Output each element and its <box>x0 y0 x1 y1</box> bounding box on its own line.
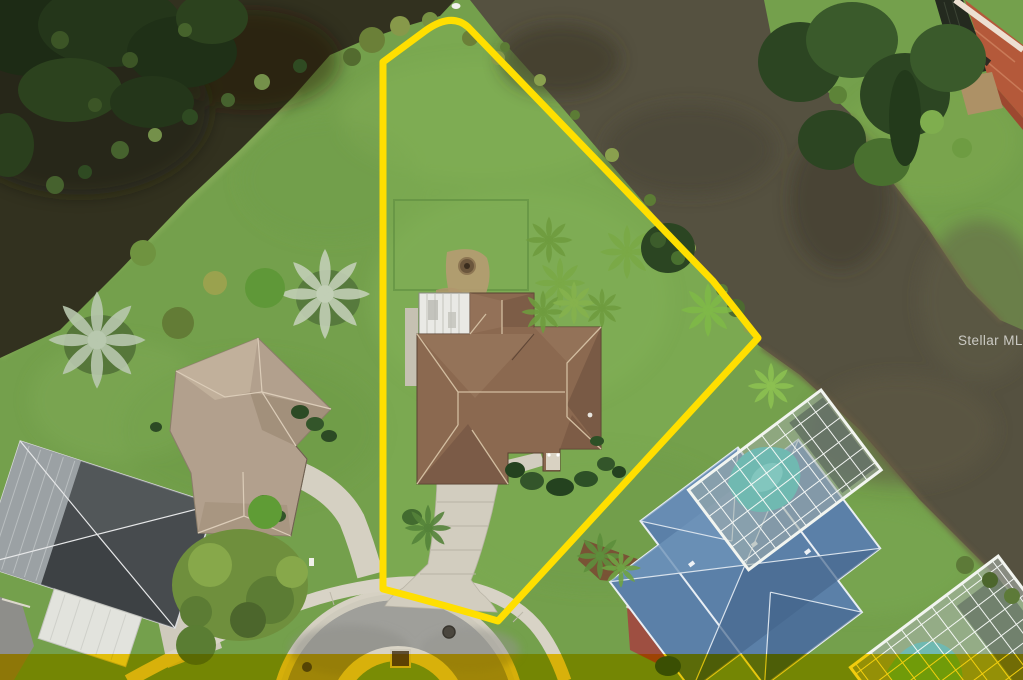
manhole-cover <box>443 626 455 638</box>
mailbox <box>309 558 314 566</box>
aerial-listing-photo: Stellar MLS <box>0 0 1023 680</box>
back-pad <box>405 308 418 386</box>
white-bird <box>452 3 461 9</box>
porch-column-2 <box>556 453 559 456</box>
highlight-band <box>0 654 1023 680</box>
watermark-text: Stellar MLS <box>958 333 1023 348</box>
roof-vent <box>588 413 593 418</box>
fire-pit-center <box>464 263 470 269</box>
aerial-photo-canvas: Stellar MLS <box>0 0 1023 680</box>
porch-column <box>547 453 550 456</box>
